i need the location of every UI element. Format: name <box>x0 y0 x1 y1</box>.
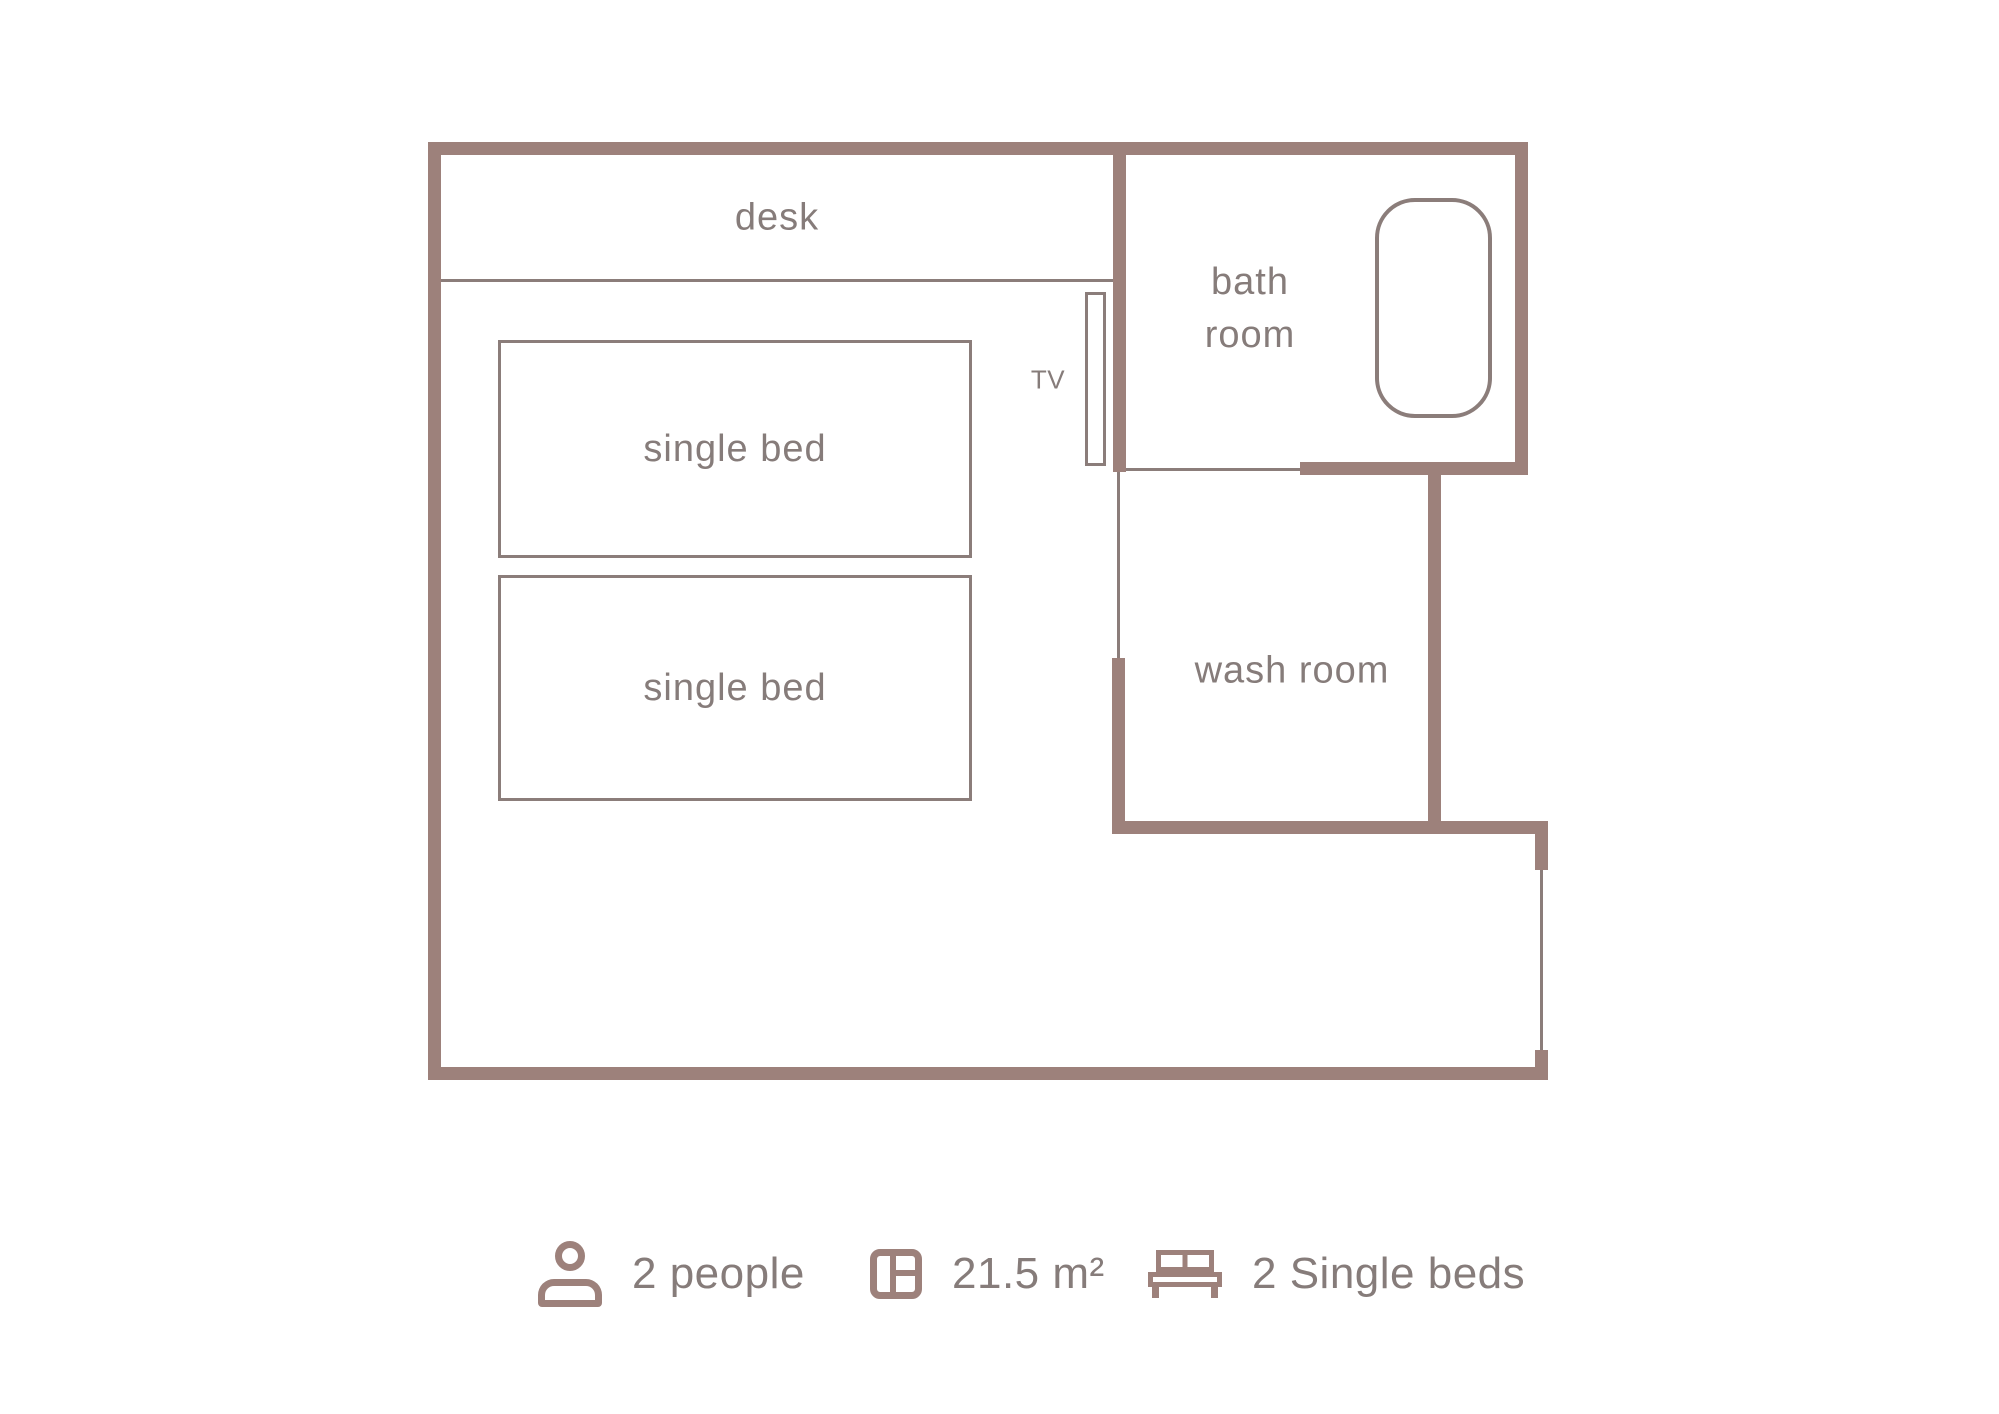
entry-door-line <box>1540 870 1543 1050</box>
tv-unit <box>1085 292 1106 466</box>
beds-label: 2 Single beds <box>1252 1249 1525 1299</box>
bed-2-label: single bed <box>643 667 826 710</box>
legend-area: 21.5 m² <box>870 1239 1105 1309</box>
wall-divider-bedroom-bathroom <box>1113 155 1126 472</box>
bathroom-label-line2: room <box>1205 314 1296 356</box>
bed-icon-headboard <box>1156 1250 1214 1272</box>
bathtub <box>1375 198 1492 418</box>
wall-left <box>428 142 441 1080</box>
tv-label: TV <box>1031 365 1065 396</box>
entry-wall-stub-bottom <box>1535 1050 1548 1067</box>
bed-1: single bed <box>498 340 972 558</box>
floor-plan: single bed single bed desk TV bath room … <box>0 0 1999 1414</box>
desk-divider-line <box>441 279 1113 282</box>
desk-label: desk <box>735 197 819 240</box>
bed-icon-leg-left <box>1152 1287 1159 1298</box>
wall-washroom-right <box>1428 462 1441 834</box>
occupancy-label: 2 people <box>632 1249 805 1299</box>
bed-icon <box>1148 1250 1222 1298</box>
entry-wall-stub-top <box>1535 834 1548 870</box>
bed-icon-leg-right <box>1211 1287 1218 1298</box>
area-label: 21.5 m² <box>952 1249 1105 1299</box>
bathroom-door-line <box>1126 468 1300 471</box>
wall-washroom-left-lower <box>1112 658 1125 834</box>
washroom-door-line <box>1117 472 1120 658</box>
washroom-label: wash room <box>1195 650 1390 693</box>
wall-bathroom-bottom <box>1300 462 1528 475</box>
bed-icon-base <box>1148 1272 1222 1287</box>
wall-bottom <box>428 1067 1548 1080</box>
person-icon-shoulders <box>538 1279 602 1307</box>
wall-right-bathroom <box>1515 142 1528 475</box>
bed-2: single bed <box>498 575 972 801</box>
bathroom-label: bath room <box>1205 256 1296 362</box>
legend-beds: 2 Single beds <box>1148 1239 1525 1309</box>
bed-icon-pillow-divider <box>1183 1255 1188 1267</box>
bed-1-label: single bed <box>643 428 826 471</box>
wall-top <box>428 142 1528 155</box>
floor-area-icon-horizontal-divider <box>896 1270 915 1276</box>
person-icon-head <box>555 1241 585 1271</box>
bathroom-label-line1: bath <box>1211 261 1289 303</box>
person-icon <box>538 1241 602 1307</box>
floor-area-icon <box>870 1249 922 1299</box>
wall-washroom-bottom <box>1112 821 1548 834</box>
legend-occupancy: 2 people <box>538 1239 805 1309</box>
